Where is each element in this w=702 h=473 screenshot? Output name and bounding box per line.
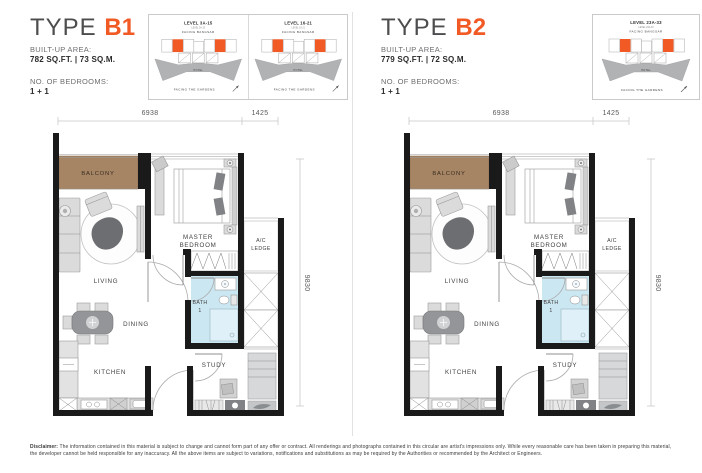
- keyplan-building-footprint: HOTEL: [155, 39, 242, 80]
- toilet: [219, 296, 229, 304]
- study-furniture: [546, 379, 596, 411]
- type-title-code: B2: [455, 14, 486, 41]
- wardrobe: [542, 251, 589, 271]
- daybed-bench: [248, 353, 276, 399]
- bedrooms-value: 1 + 1: [30, 87, 150, 96]
- living-room-furniture: [59, 192, 144, 272]
- type-b1-header: TYPE B1 BUILT-UP AREA: 782 SQ.FT. | 73 S…: [30, 16, 150, 96]
- dining-chair: [428, 335, 441, 344]
- page-title: TYPE B1: [30, 16, 150, 40]
- dining-label: DINING: [123, 321, 149, 328]
- master-bedroom-label-2: BEDROOM: [531, 242, 568, 249]
- master-bedroom-label-1: MASTER: [534, 234, 564, 241]
- key-plan: LEVEL 3A-15 LEVEL 3A-15 FACING BANGSAR: [149, 15, 248, 99]
- dining-furniture: [414, 303, 464, 344]
- living-label: LIVING: [94, 278, 119, 285]
- bedroom-chair: [152, 156, 169, 172]
- dimension-height: 9830: [654, 275, 661, 292]
- section-type-b1: TYPE B1 BUILT-UP AREA: 782 SQ.FT. | 73 S…: [0, 0, 351, 473]
- compass-icon: [681, 86, 687, 92]
- type-title-code: B1: [104, 14, 135, 41]
- dimension-top: 6938 1425: [409, 110, 629, 125]
- keyplan-hotel-label: HOTEL: [193, 69, 203, 72]
- dimension-width-main: 6938: [493, 110, 510, 117]
- bedrooms-value: 1 + 1: [381, 87, 501, 96]
- kitchen-furniture: [410, 341, 504, 411]
- ac-ledge-label-1: A/C: [607, 238, 617, 244]
- floor-plan-b1: BALCONY LIVING DINING KITCHEN MASTER BED…: [48, 103, 348, 436]
- keyplan-box-b2: LEVEL 23A-33 LEVEL 23A-33 FACING BANGSAR: [592, 14, 700, 100]
- keyplan-facing-bangsar-label: FACING BANGSAR: [182, 30, 215, 34]
- dimension-right: 9830: [647, 159, 661, 406]
- floor-plan: BALCONY LIVING DINING KITCHEN MASTER BED…: [48, 103, 348, 436]
- keyplan-level-label: LEVEL 3A-15: [184, 20, 213, 25]
- dining-label: DINING: [474, 321, 500, 328]
- built-up-area-label: BUILT-UP AREA:: [381, 45, 501, 54]
- floor-plan: BALCONY LIVING DINING KITCHEN MASTER BED…: [399, 103, 699, 436]
- compass-icon: [233, 86, 239, 92]
- study-chair: [221, 383, 233, 394]
- keyplan-facing-bangsar-label: FACING BANGSAR: [629, 30, 662, 34]
- bedroom-furniture: [503, 156, 588, 234]
- dining-chair: [446, 303, 459, 312]
- headboard: [232, 167, 237, 225]
- keyplan-facing-bangsar-label: FACING BANGSAR: [281, 30, 314, 34]
- ac-ledge-label-2: LEDGE: [602, 246, 622, 252]
- built-up-area-label: BUILT-UP AREA:: [30, 45, 150, 54]
- dining-chair: [63, 316, 72, 329]
- type-title-prefix: TYPE: [30, 14, 97, 41]
- dining-chair: [446, 335, 459, 344]
- bedroom-chair: [503, 156, 520, 172]
- keyplan-box-b1: LEVEL 3A-15 LEVEL 3A-15 FACING BANGSAR: [148, 14, 348, 100]
- kitchen-label: KITCHEN: [94, 369, 126, 376]
- disclaimer-text: Disclaimer: The information contained in…: [30, 444, 675, 459]
- keyplan-hotel-label: HOTEL: [293, 69, 303, 72]
- keyplan-cell: LEVEL 23A-33 LEVEL 23A-33 FACING BANGSAR: [593, 15, 699, 99]
- key-plan: LEVEL 23A-33 LEVEL 23A-33 FACING BANGSAR: [593, 15, 699, 99]
- dimension-width-main: 6938: [142, 110, 159, 117]
- keyplan-cell: LEVEL 3A-15 LEVEL 3A-15 FACING BANGSAR: [149, 15, 248, 99]
- section-divider: [352, 12, 353, 436]
- floor-plan-b2: BALCONY LIVING DINING KITCHEN MASTER BED…: [399, 103, 699, 436]
- master-bedroom-label-2: BEDROOM: [180, 242, 217, 249]
- study-label: STUDY: [553, 362, 577, 369]
- living-label: LIVING: [445, 278, 470, 285]
- type-b2-header: TYPE B2 BUILT-UP AREA: 779 SQ.FT. | 72 S…: [381, 16, 501, 96]
- dimension-width-right: 1425: [252, 110, 269, 117]
- bath-label-1: BATH: [192, 300, 207, 306]
- study-label: STUDY: [202, 362, 226, 369]
- compass-icon: [332, 86, 338, 92]
- cooktop: [81, 400, 107, 409]
- kitchen-furniture: [59, 341, 153, 411]
- dimension-right: 9830: [296, 159, 310, 406]
- section-type-b2: TYPE B2 BUILT-UP AREA: 779 SQ.FT. | 72 S…: [351, 0, 702, 473]
- kitchen-label: KITCHEN: [445, 369, 477, 376]
- keyplan-cell: LEVEL 16-21 LEVEL 16-21 FACING BANGSAR: [248, 15, 348, 99]
- dining-chair: [77, 335, 90, 344]
- type-title-prefix: TYPE: [381, 14, 448, 41]
- disclaimer-line2: All the above items are subject to varia…: [172, 451, 543, 457]
- dining-chair: [414, 316, 423, 329]
- study-furniture: [195, 379, 245, 411]
- keyplan-building-footprint: HOTEL: [602, 39, 690, 81]
- bath-label-1: BATH: [543, 300, 558, 306]
- dimension-width-right: 1425: [603, 110, 620, 117]
- master-bedroom-label-1: MASTER: [183, 234, 213, 241]
- keyplan-level-label: LEVEL 23A-33: [630, 20, 662, 25]
- keyplan-facing-gardens-label: FACING THE GARDENS: [621, 88, 663, 92]
- disclaimer-label: Disclaimer:: [30, 444, 58, 450]
- wardrobe: [191, 251, 238, 271]
- built-up-area-value: 782 SQ.FT. | 73 SQ.M.: [30, 55, 150, 64]
- living-room-furniture: [410, 192, 495, 272]
- dining-chair: [77, 303, 90, 312]
- dining-chair: [95, 335, 108, 344]
- bedrooms-label: NO. OF BEDROOMS:: [381, 77, 501, 86]
- dining-chair: [428, 303, 441, 312]
- dimension-top: 6938 1425: [58, 110, 278, 125]
- dining-furniture: [63, 303, 113, 344]
- key-plan: LEVEL 16-21 LEVEL 16-21 FACING BANGSAR: [249, 15, 348, 99]
- ac-ledge-label-1: A/C: [256, 238, 266, 244]
- bath-label-2: 1: [549, 308, 552, 314]
- balcony-label: BALCONY: [432, 171, 465, 177]
- keyplan-building-footprint: HOTEL: [254, 39, 341, 80]
- keyplan-facing-gardens-label: FACING THE GARDENS: [174, 87, 215, 91]
- dimension-height: 9830: [303, 275, 310, 292]
- keyplan-hotel-label: HOTEL: [641, 69, 651, 72]
- toilet: [570, 296, 580, 304]
- study-chair: [572, 383, 584, 394]
- ac-ledge-label-2: LEDGE: [251, 246, 271, 252]
- built-up-area-value: 779 SQ.FT. | 72 SQ.M.: [381, 55, 501, 64]
- bedrooms-label: NO. OF BEDROOMS:: [30, 77, 150, 86]
- daybed-bench: [599, 353, 627, 399]
- bedroom-furniture: [152, 156, 237, 234]
- headboard: [583, 167, 588, 225]
- keyplan-level-label: LEVEL 16-21: [284, 20, 312, 25]
- page-title: TYPE B2: [381, 16, 501, 40]
- balcony-label: BALCONY: [81, 171, 114, 177]
- dining-chair: [95, 303, 108, 312]
- cooktop: [432, 400, 458, 409]
- keyplan-facing-gardens-label: FACING THE GARDENS: [273, 87, 314, 91]
- floorplan-brochure-page: { "colors": { "accent_orange": "#F15A25"…: [0, 0, 702, 473]
- bath-label-2: 1: [198, 308, 201, 314]
